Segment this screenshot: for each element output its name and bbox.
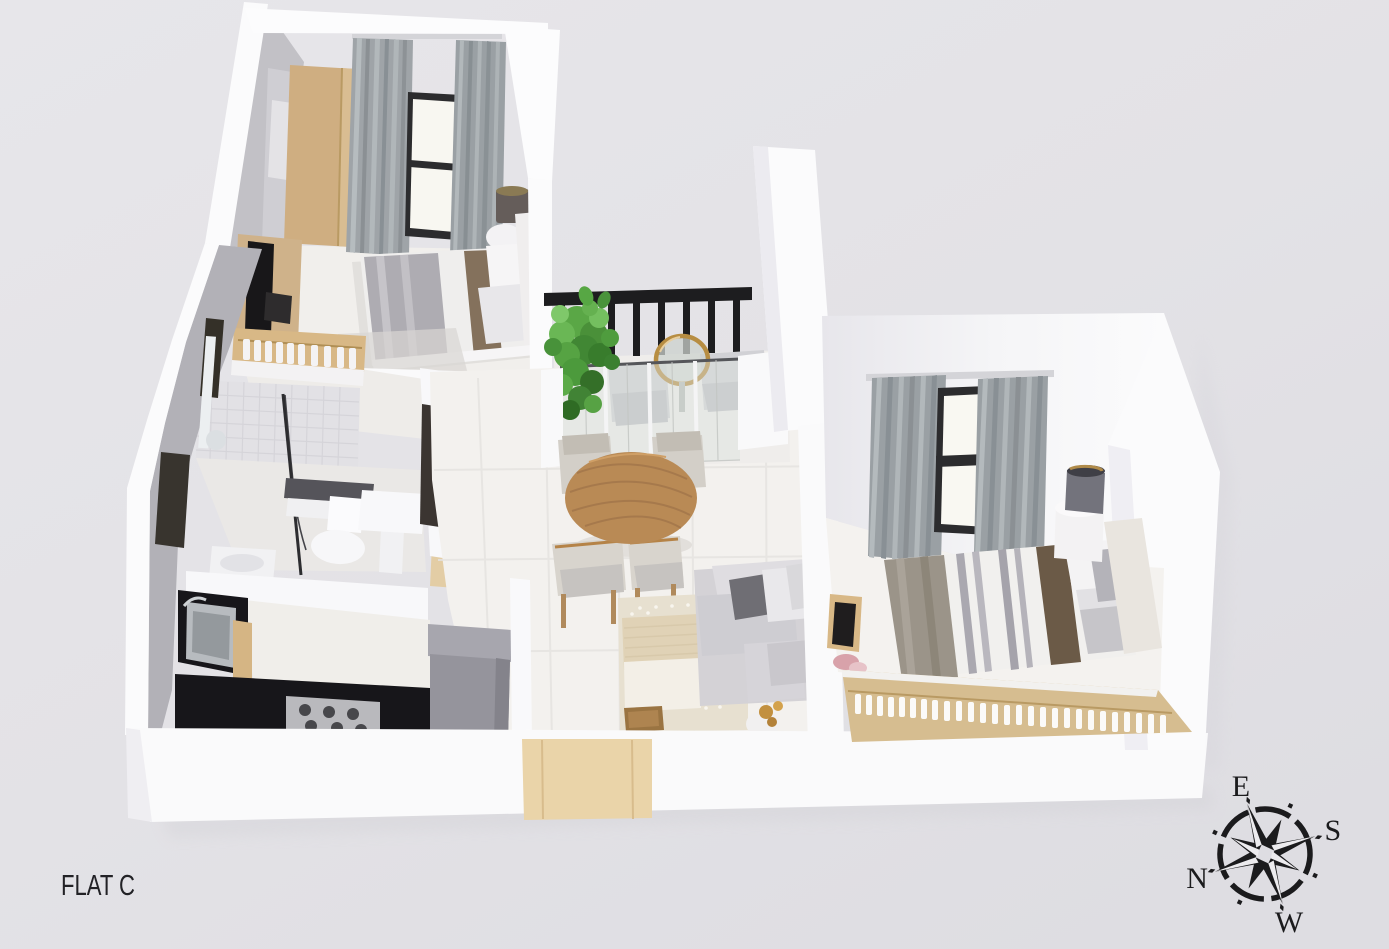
svg-text:E: E	[1232, 770, 1250, 803]
svg-text:S: S	[1325, 814, 1342, 847]
svg-text:FLAT C: FLAT C	[61, 870, 135, 902]
svg-text:W: W	[1275, 906, 1304, 939]
svg-text:N: N	[1186, 862, 1208, 895]
